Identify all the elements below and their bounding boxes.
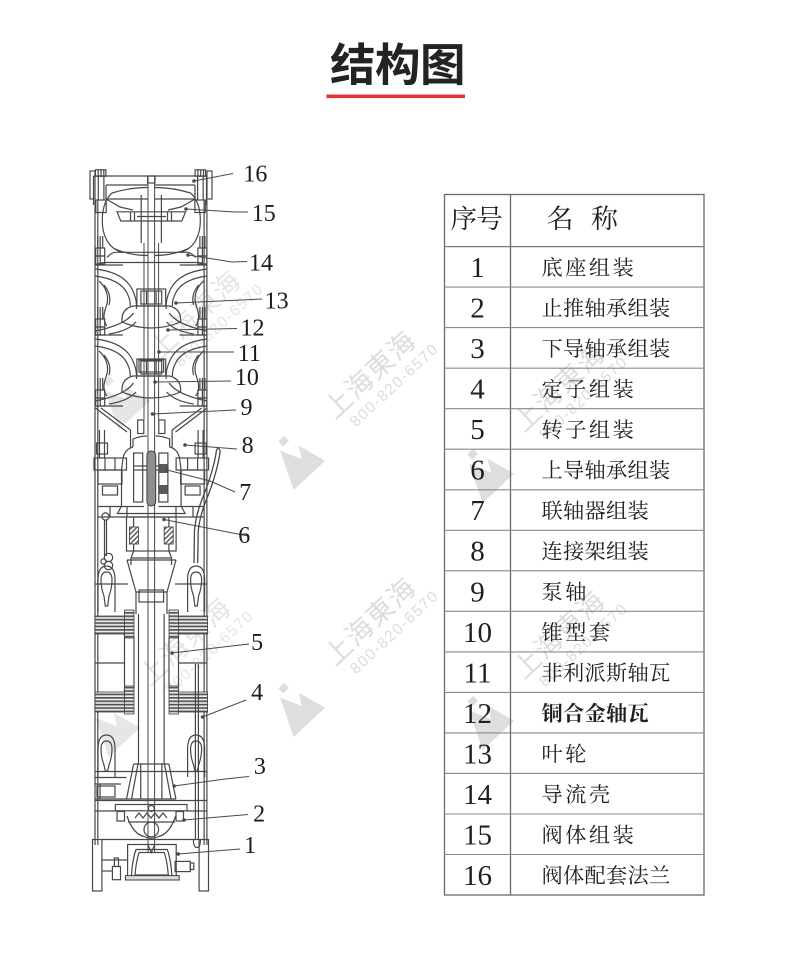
svg-text:14: 14 [463, 779, 493, 811]
svg-text:5: 5 [470, 414, 485, 446]
svg-text:15: 15 [252, 201, 276, 227]
svg-text:5: 5 [251, 630, 263, 656]
svg-text:4: 4 [251, 680, 263, 706]
svg-text:1: 1 [244, 833, 256, 859]
svg-text:9: 9 [241, 395, 253, 421]
svg-text:8: 8 [242, 433, 254, 459]
svg-text:800-820-6570: 800-820-6570 [536, 600, 631, 691]
svg-text:800-820-6570: 800-820-6570 [347, 587, 442, 678]
svg-text:11: 11 [464, 657, 492, 689]
svg-text:15: 15 [463, 819, 492, 851]
svg-text:2: 2 [253, 802, 265, 828]
svg-text:2: 2 [470, 293, 485, 325]
svg-text:1: 1 [470, 252, 485, 284]
svg-text:12: 12 [463, 698, 492, 730]
svg-text:13: 13 [265, 289, 289, 315]
svg-text:11: 11 [238, 341, 261, 367]
svg-text:3: 3 [254, 754, 266, 780]
svg-text:12: 12 [241, 316, 265, 342]
svg-text:6: 6 [470, 455, 485, 487]
svg-text:8: 8 [470, 536, 485, 568]
svg-text:16: 16 [243, 162, 267, 188]
svg-text:7: 7 [470, 495, 485, 527]
svg-text:10: 10 [235, 365, 259, 391]
svg-text:16: 16 [463, 860, 492, 892]
svg-text:13: 13 [463, 738, 492, 770]
svg-text:10: 10 [463, 617, 492, 649]
svg-text:800-820-6570: 800-820-6570 [347, 340, 442, 431]
svg-text:3: 3 [470, 333, 485, 365]
svg-text:6: 6 [238, 523, 250, 549]
svg-text:14: 14 [249, 251, 273, 277]
svg-text:7: 7 [239, 480, 251, 506]
svg-text:4: 4 [470, 374, 485, 406]
svg-text:9: 9 [470, 576, 485, 608]
svg-text:800-820-6570: 800-820-6570 [536, 353, 631, 444]
